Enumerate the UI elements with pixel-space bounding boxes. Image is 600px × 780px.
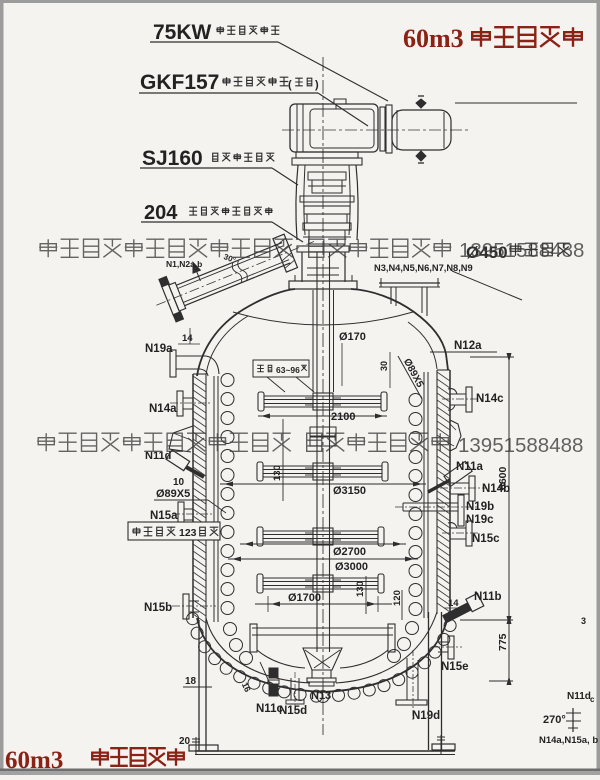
svg-text:Ø3000: Ø3000 bbox=[335, 561, 368, 573]
svg-text:GKF157: GKF157 bbox=[140, 71, 219, 94]
svg-text:204: 204 bbox=[144, 202, 178, 224]
svg-text:N14a: N14a bbox=[149, 403, 177, 415]
svg-text:N15d: N15d bbox=[279, 705, 307, 717]
svg-text:N11b: N11b bbox=[474, 591, 502, 603]
svg-text:(: ( bbox=[288, 79, 292, 91]
svg-text:13951588488: 13951588488 bbox=[458, 434, 583, 457]
svg-text:130: 130 bbox=[355, 581, 366, 597]
svg-text:N11d: N11d bbox=[567, 691, 591, 702]
svg-text:Ø2700: Ø2700 bbox=[333, 546, 366, 558]
svg-text:130: 130 bbox=[272, 465, 283, 481]
svg-text:N15c: N15c bbox=[472, 533, 500, 545]
svg-text:Ø170: Ø170 bbox=[339, 331, 366, 343]
svg-text:60m3: 60m3 bbox=[5, 747, 63, 774]
svg-text:10: 10 bbox=[173, 477, 185, 488]
svg-text:N19a: N19a bbox=[145, 343, 173, 355]
svg-text:775: 775 bbox=[497, 633, 509, 651]
svg-text:Ø89X5: Ø89X5 bbox=[156, 488, 190, 500]
svg-text:N1,N2a,b: N1,N2a,b bbox=[166, 259, 202, 269]
svg-text:c: c bbox=[590, 695, 595, 704]
svg-text:13951588488: 13951588488 bbox=[459, 239, 584, 262]
svg-text:30: 30 bbox=[379, 361, 389, 371]
svg-text:Ø3150: Ø3150 bbox=[333, 485, 366, 497]
svg-text:N12a: N12a bbox=[454, 340, 482, 352]
svg-text:18: 18 bbox=[185, 676, 197, 687]
svg-text:N3,N4,N5,N6,N7,N8,N9: N3,N4,N5,N6,N7,N8,N9 bbox=[374, 263, 473, 273]
svg-text:123: 123 bbox=[179, 527, 197, 539]
svg-text:N15b: N15b bbox=[144, 602, 172, 614]
svg-text:2100: 2100 bbox=[331, 411, 355, 423]
svg-text:N19d: N19d bbox=[412, 710, 440, 722]
svg-text:60m3: 60m3 bbox=[403, 24, 464, 53]
svg-text:14: 14 bbox=[448, 598, 459, 609]
svg-text:N14a,N15a, b: N14a,N15a, b bbox=[539, 735, 598, 746]
svg-text:N15a: N15a bbox=[150, 510, 178, 522]
svg-text:): ) bbox=[315, 79, 319, 91]
svg-text:N15e: N15e bbox=[441, 661, 469, 673]
svg-text:14: 14 bbox=[182, 333, 193, 344]
svg-text:N13: N13 bbox=[311, 690, 331, 702]
svg-text:120: 120 bbox=[392, 590, 403, 606]
svg-text:N19c: N19c bbox=[466, 514, 494, 526]
svg-text:N14b: N14b bbox=[482, 483, 510, 495]
svg-text:63~96: 63~96 bbox=[276, 365, 300, 375]
svg-text:N11a: N11a bbox=[456, 461, 483, 473]
svg-text:3: 3 bbox=[581, 616, 586, 626]
svg-text:270°: 270° bbox=[543, 714, 566, 726]
svg-text:75KW: 75KW bbox=[153, 21, 212, 44]
svg-text:N19b: N19b bbox=[466, 501, 494, 513]
svg-text:SJ160: SJ160 bbox=[142, 147, 203, 170]
svg-text:Ø1700: Ø1700 bbox=[288, 592, 321, 604]
svg-text:N14c: N14c bbox=[476, 393, 504, 405]
svg-text:20: 20 bbox=[179, 736, 191, 747]
